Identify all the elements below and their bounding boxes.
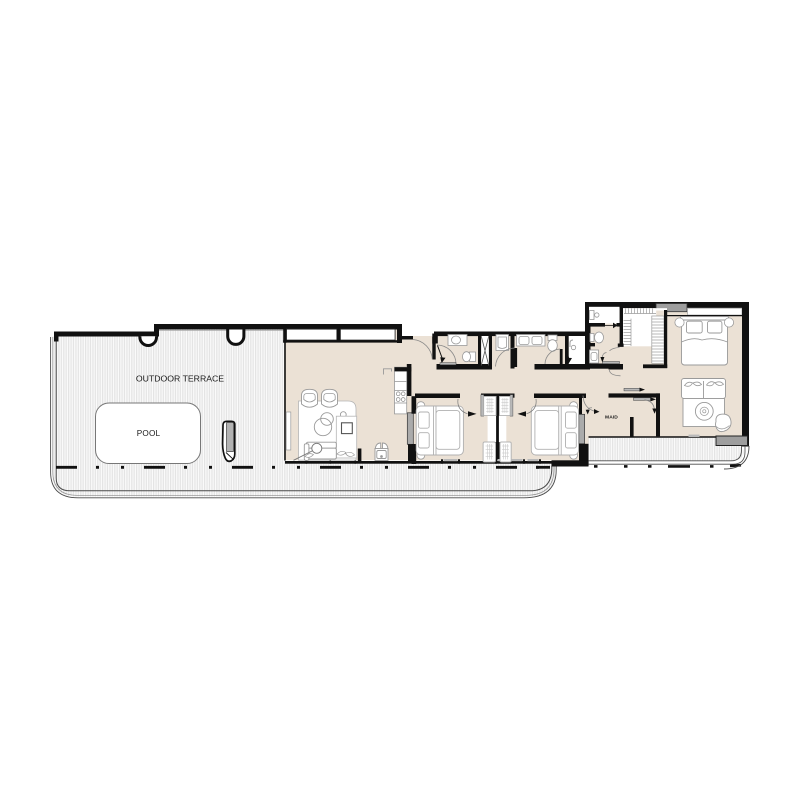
svg-text:MAID: MAID [605,415,618,421]
svg-text:POOL: POOL [137,429,161,438]
svg-text:OUTDOOR TERRACE: OUTDOOR TERRACE [136,374,224,384]
